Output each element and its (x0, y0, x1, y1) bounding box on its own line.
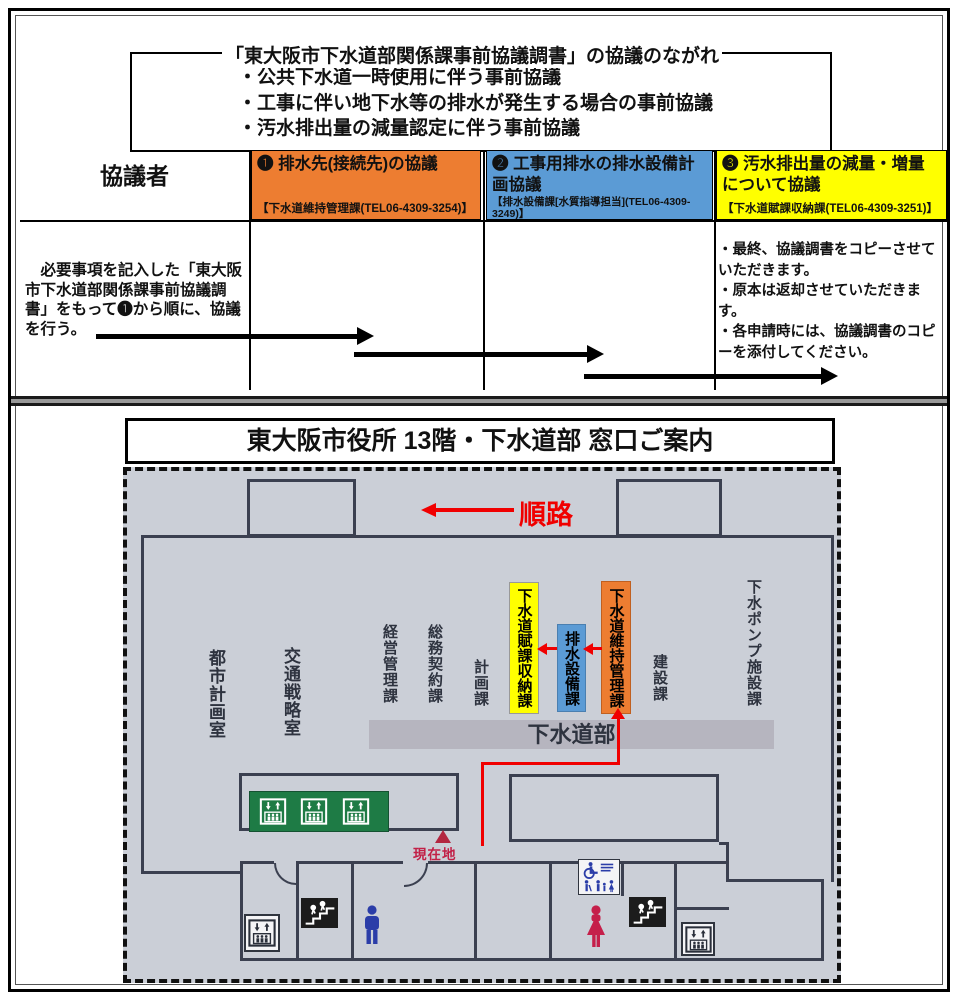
wall (726, 879, 824, 882)
table-column-divider (249, 150, 251, 390)
route-arrow-line (435, 508, 514, 512)
route-line (481, 762, 484, 846)
route-line (617, 718, 620, 765)
room-label-kensetsu: 建設課 (649, 654, 670, 710)
flow-arrow-2 (354, 352, 588, 357)
map-title: 東大阪市役所 13階・下水道部 窓口ご案内 (125, 418, 835, 464)
copy-note: ・原本は返却させていただきます。 (718, 281, 948, 322)
copy-note: ・最終、協議調書をコピーさせていただきます。 (718, 240, 948, 281)
department-bar: 下水道部 (369, 720, 774, 749)
flow-bullet: ・公共下水道一時使用に伴う事前協議 (238, 65, 830, 91)
wall (240, 861, 243, 961)
room-label-kotsusenryaku: 交通戦略室 (278, 647, 303, 743)
flow-title: 「東大阪市下水道部関係課事前協議調書」の協議のながれ (222, 41, 722, 68)
door-arc (274, 863, 296, 885)
wall (240, 958, 824, 961)
table-column-divider (714, 150, 716, 390)
room-label-haisuisetsubi-highlight: 排水設備課 (557, 624, 586, 712)
men-restroom-icon (360, 905, 384, 954)
wall (296, 861, 299, 961)
elevator-icon (259, 798, 287, 825)
flow-arrow-1 (96, 334, 358, 339)
room-label-gesuipump: 下水ポンプ施設課 (743, 579, 764, 709)
step1-contact: 【下水道維持管理課(TEL06-4309-3254)】 (257, 203, 475, 215)
elevator-icon (300, 798, 328, 825)
room-label-somukeiyaku: 総務契約課 (424, 624, 445, 710)
room-label-keikaku: 計画課 (470, 659, 491, 711)
room-label-keieikanri: 経営管理課 (379, 624, 400, 710)
wall (240, 861, 274, 864)
elevator-icon (244, 914, 280, 952)
wall (549, 861, 552, 961)
copy-notes: ・最終、協議調書をコピーさせていただきます。 ・原本は返却させていただきます。 … (718, 240, 948, 363)
wall (351, 861, 354, 961)
wall (831, 535, 834, 882)
route-line (481, 762, 620, 765)
current-location-marker (435, 830, 451, 843)
floor-plan: 順路 下水道部 都市計画室 交通戦略室 経営管理課 総務契約課 (123, 467, 841, 983)
step3-contact: 【下水道賦課収納課(TEL06-4309-3251)】 (722, 203, 941, 215)
table-header-underline (20, 220, 948, 222)
step1-title: ❶ 排水先(接続先)の協議 (257, 154, 475, 175)
top-room (247, 479, 356, 537)
room-label-ijikanri-highlight: 下水道維持管理課 (601, 581, 631, 714)
elevator-bank (249, 791, 389, 832)
step3-title: ❸ 汚水排出量の減量・増量について協議 (722, 154, 941, 196)
table-header-party: 協議者 (20, 150, 249, 220)
elevator-icon (681, 922, 715, 956)
wall (141, 535, 144, 874)
procedure-note: 必要事項を記入した「東大阪市下水道部関係課事前協議調書」をもって❶から順に、協議… (25, 261, 247, 339)
wall (474, 861, 477, 961)
wall (719, 842, 729, 845)
step2-title: ❷ 工事用排水の排水設備計画協議 (492, 154, 707, 196)
stairs-icon (629, 897, 666, 927)
flow-bullet: ・汚水排出量の減量認定に伴う事前協議 (238, 116, 830, 142)
route-arrow-head (421, 503, 436, 517)
accessible-restroom-icon (578, 859, 620, 895)
room-label-toshikeikaku: 都市計画室 (203, 649, 228, 745)
route-arrowhead-up (611, 708, 625, 719)
section-divider (11, 396, 947, 406)
wall (674, 861, 677, 961)
room-label-fukakashuno-highlight: 下水道賦課収納課 (509, 582, 539, 714)
route-line (592, 647, 602, 650)
current-location-label: 現在地 (413, 843, 457, 863)
table-header-step1: ❶ 排水先(接続先)の協議 【下水道維持管理課(TEL06-4309-3254)… (251, 150, 481, 220)
flow-arrow-3 (584, 374, 822, 379)
wall (821, 879, 824, 961)
door-arc (404, 863, 428, 887)
flow-arrow-1-head (357, 327, 374, 345)
table-header-step3: ❸ 汚水排出量の減量・増量について協議 【下水道賦課収納課(TEL06-4309… (716, 150, 947, 220)
route-line (546, 647, 557, 650)
flow-title-box: 「東大阪市下水道部関係課事前協議調書」の協議のながれ ・公共下水道一時使用に伴う… (130, 52, 832, 152)
wall (141, 535, 834, 538)
wall (141, 871, 243, 874)
route-label: 順路 (519, 493, 573, 532)
document-page: 「東大阪市下水道部関係課事前協議調書」の協議のながれ ・公共下水道一時使用に伴う… (0, 0, 958, 1000)
table-header-step2: ❷ 工事用排水の排水設備計画協議 【排水設備課[水質指導担当](TEL06-43… (486, 150, 713, 220)
copy-note: ・各申請時には、協議調書のコピーを添付してください。 (718, 322, 948, 363)
step2-contact: 【排水設備課[水質指導担当](TEL06-4309-3249)】 (492, 196, 707, 220)
stairs-icon (301, 898, 338, 928)
elevator-icon (342, 798, 370, 825)
wall (674, 907, 729, 910)
wall (296, 861, 403, 864)
wall (726, 842, 729, 882)
inner-room (509, 774, 719, 842)
route-arrowhead-left (537, 643, 547, 655)
top-room (616, 479, 722, 537)
route-arrowhead-left (583, 643, 593, 655)
flow-arrow-2-head (587, 345, 604, 363)
women-restroom-icon (583, 905, 609, 954)
flow-bullet: ・工事に伴い地下水等の排水が発生する場合の事前協議 (238, 91, 830, 117)
wall (621, 861, 624, 896)
flow-arrow-3-head (821, 367, 838, 385)
